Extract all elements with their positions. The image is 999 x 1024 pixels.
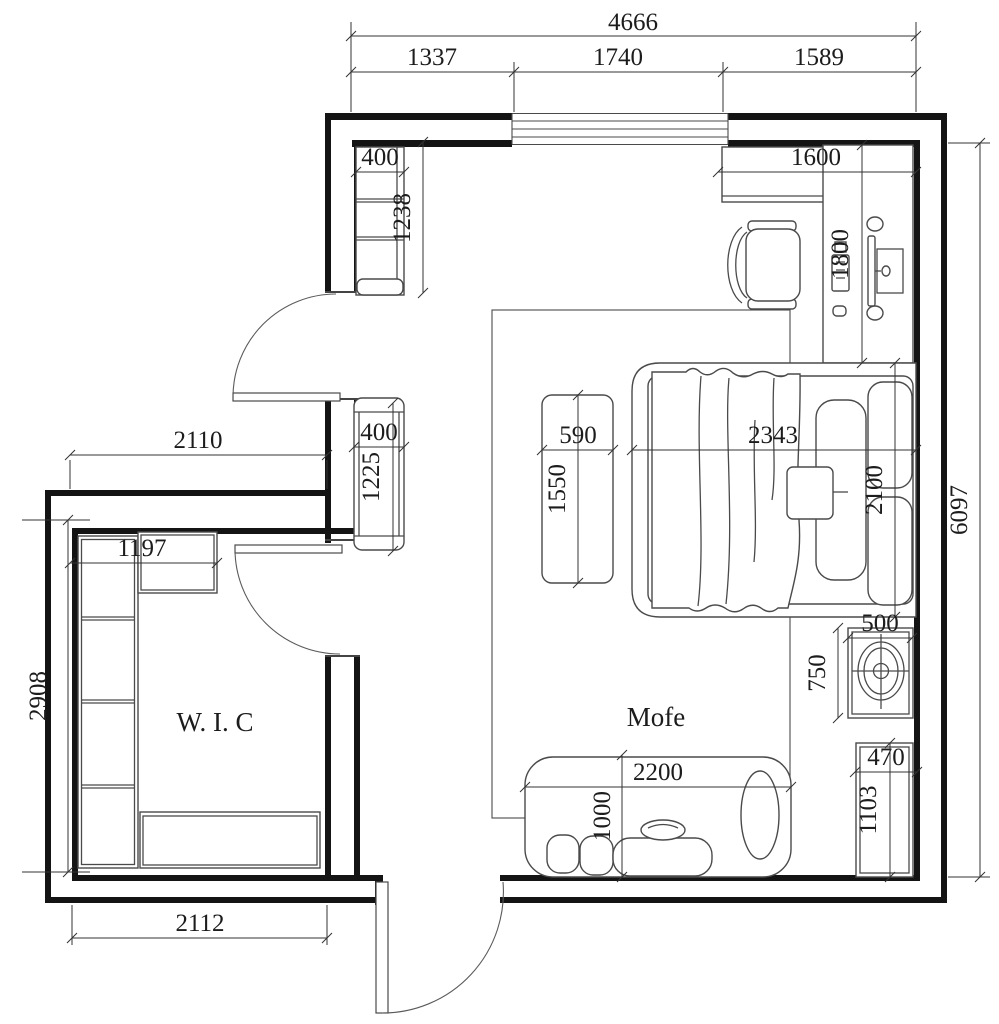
svg-text:1800: 1800	[827, 229, 854, 279]
door-entrance	[376, 882, 503, 1013]
svg-text:1550: 1550	[544, 464, 571, 514]
svg-text:2343: 2343	[748, 422, 798, 449]
svg-text:1197: 1197	[117, 535, 166, 562]
blanket	[652, 368, 800, 611]
floor-plan-canvas: 4666 1337 1740 1589 400 1238 1600 1800	[0, 0, 999, 1024]
svg-text:1000: 1000	[589, 791, 616, 841]
svg-text:400: 400	[361, 144, 399, 171]
sink	[848, 628, 913, 718]
svg-text:400: 400	[360, 419, 398, 446]
floor-plan: 4666 1337 1740 1589 400 1238 1600 1800	[0, 0, 999, 1024]
cushion	[547, 835, 579, 873]
mouse-icon	[833, 306, 846, 316]
svg-text:2110: 2110	[173, 427, 222, 454]
svg-text:500: 500	[861, 610, 899, 637]
svg-text:1589: 1589	[794, 44, 844, 71]
dim-segment-left: 1337	[346, 44, 519, 77]
svg-text:1337: 1337	[407, 44, 457, 71]
window	[512, 114, 728, 145]
svg-text:4666: 4666	[608, 9, 658, 36]
dim-window-width: 1740	[514, 44, 728, 112]
speaker-icon	[867, 306, 883, 320]
svg-text:2908: 2908	[25, 671, 52, 721]
wardrobe	[78, 536, 138, 868]
monitor-icon	[868, 236, 875, 306]
door-entrance-swing-arc	[382, 882, 503, 1013]
door-hall-leaf	[233, 393, 340, 401]
svg-text:1238: 1238	[389, 193, 416, 243]
speaker-icon	[867, 217, 883, 231]
door-entrance-leaf	[376, 882, 388, 1013]
svg-text:2200: 2200	[633, 759, 683, 786]
wic-bottom-cabinet	[140, 812, 320, 868]
cushion	[613, 838, 712, 876]
armrest-roll	[741, 771, 779, 859]
door-wic	[235, 545, 342, 654]
svg-text:1740: 1740	[593, 44, 643, 71]
dim-hall-width: 2110	[65, 427, 332, 489]
door-wic-swing-arc	[235, 549, 340, 654]
svg-text:470: 470	[867, 744, 905, 771]
door-hall-swing-arc	[233, 294, 336, 397]
svg-text:750: 750	[804, 654, 831, 692]
cushion	[787, 467, 833, 519]
dim-segment-right: 1589	[723, 44, 921, 77]
svg-text:2100: 2100	[861, 465, 888, 515]
svg-text:6097: 6097	[946, 485, 973, 535]
room-label-wic: W. I. C	[176, 707, 253, 737]
dim-sink-depth: 750	[804, 623, 843, 723]
room-label-sofa-area: Mofe	[627, 702, 685, 732]
office-chair	[728, 221, 800, 309]
svg-text:1225: 1225	[358, 452, 385, 502]
dim-wic-width: 2112	[67, 905, 332, 945]
door-wic-leaf	[235, 545, 342, 553]
door-hall	[233, 294, 340, 401]
svg-text:2112: 2112	[175, 910, 224, 937]
pillow	[641, 820, 685, 840]
dim-room-height: 6097	[946, 138, 990, 882]
svg-text:1103: 1103	[855, 785, 882, 834]
svg-text:1600: 1600	[791, 144, 841, 171]
